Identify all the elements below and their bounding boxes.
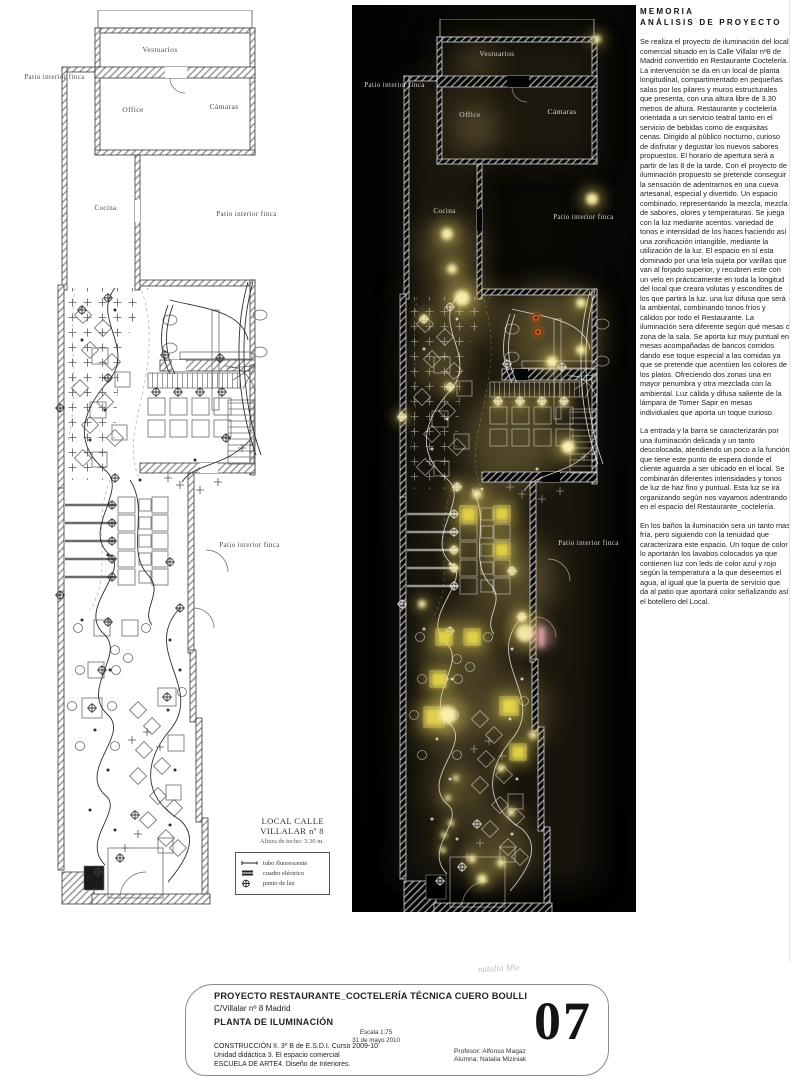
project-title: PROYECTO RESTAURANTE_COCTELERÍA TÉCNICA … [214, 991, 527, 1001]
drawing-title: PLANTA DE ILUMINACIÓN [214, 1017, 333, 1027]
professor-line: Profesor: Alfonso Magaz [454, 1048, 526, 1056]
plan-caption: LOCAL CALLE VILLALAR nº 8 Altura de tech… [222, 816, 324, 845]
unit-line: Unidad didáctica 3. El espacio comercial [214, 1052, 378, 1061]
room-label-cocina-dark: Cocina [427, 207, 462, 215]
title-block: PROYECTO RESTAURANTE_COCTELERÍA TÉCNICA … [185, 984, 609, 1076]
room-label-office: Office [112, 105, 154, 114]
presentation-sheet: Vestuarios Patio interior finca Office C… [0, 0, 793, 1080]
fluorescent-tube-icon [241, 859, 263, 867]
memoria-paragraph: En los baños la iluminación sera un tant… [640, 521, 790, 607]
course-line: CONSTRUCCIÓN II. 3º B de E.S.D.I. Curso … [214, 1043, 378, 1052]
room-label-camaras-dark: Cámaras [538, 107, 586, 116]
electrical-panel-icon [241, 869, 263, 877]
memoria-title-line1: MEMORIA [640, 6, 790, 17]
floor-plan-dark [352, 5, 636, 912]
project-address: C/Villalar nº 8 Madrid [214, 1004, 291, 1013]
people-info: Profesor: Alfonso Magaz Alumna: Natalia … [454, 1048, 526, 1064]
sheet-number: 07 [534, 991, 592, 1051]
legend-item-panel: cuadro eléctrico [241, 868, 329, 878]
room-label-vestuarios: Vestuarios [135, 45, 185, 54]
memoria-paragraph: Se realiza el proyecto de iluminación de… [640, 37, 790, 417]
course-info: CONSTRUCCIÓN II. 3º B de E.S.D.I. Curso … [214, 1043, 378, 1069]
room-label-patio-low: Patio interior finca [218, 541, 281, 549]
memoria-paragraph: La entrada y la barra se caracterizarán … [640, 426, 790, 512]
memoria-column: MEMORIA ANÁLISIS DE PROYECTO Se realiza … [640, 6, 790, 615]
room-label-patio-low-dark: Patio interior finca [557, 539, 620, 547]
furniture [65, 78, 267, 898]
room-label-office-dark: Office [448, 110, 492, 119]
memoria-title-line2: ANÁLISIS DE PROYECTO [640, 17, 790, 28]
plan-svg-light [20, 10, 335, 910]
sheet-edge-line [789, 0, 790, 962]
room-label-patio-top-dark: Patio interior finca [363, 81, 426, 89]
legend-item-lightpoint: punto de luz [241, 878, 329, 888]
room-label-vestuarios-dark: Vestuarios [472, 49, 522, 58]
school-line: ESCUELA DE ARTE4. Diseño de Interiores. [214, 1061, 378, 1070]
floor-plan-light [20, 10, 340, 915]
room-label-patio-top: Patio interior finca [23, 73, 86, 81]
room-label-patio-mid-dark: Patio interior finca [552, 213, 615, 221]
student-line: Alumna: Natalia Miziniak [454, 1056, 526, 1064]
plan-caption-title: LOCAL CALLE VILLALAR nº 8 [222, 816, 324, 836]
plus-marks [121, 444, 246, 852]
scale-and-date: Escala 1:75 31 de mayo 2010 [316, 1029, 436, 1044]
plan-caption-subtitle: Altura de techo: 3.30 m. [222, 838, 324, 845]
watermark-signature: natalia Miz [478, 962, 520, 974]
legend-item-fluorescent: tubo fluorescente [241, 858, 329, 868]
light-point-icon [241, 879, 263, 888]
room-label-cocina: Cocina [88, 204, 123, 212]
room-label-patio-mid: Patio interior finca [215, 210, 278, 218]
plus-field [66, 288, 148, 480]
scale-text: Escala 1:75 [316, 1029, 436, 1037]
room-label-camaras: Cámaras [200, 102, 248, 111]
service-door-led [539, 627, 544, 647]
plan-svg-dark [362, 19, 636, 912]
legend-box: tubo fluorescente cuadro eléctrico punto… [235, 852, 330, 895]
